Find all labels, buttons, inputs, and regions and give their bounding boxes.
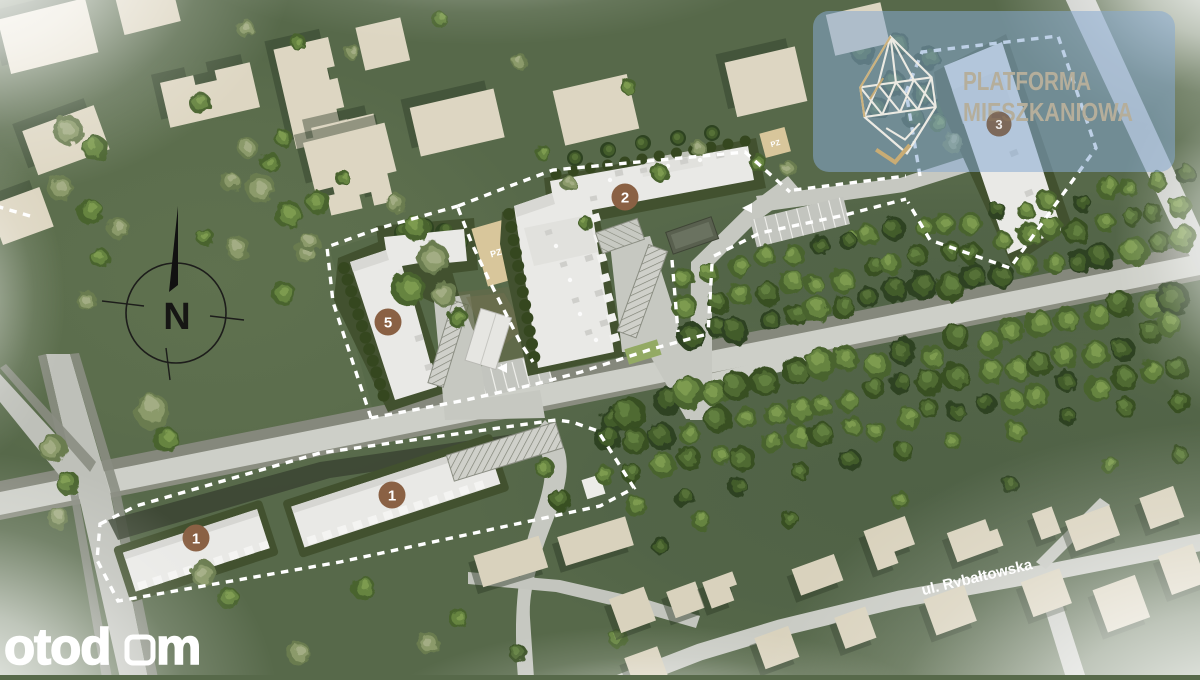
svg-text:3: 3 — [995, 117, 1002, 132]
svg-text:m: m — [156, 618, 201, 675]
svg-text:otod: otod — [4, 618, 110, 675]
svg-text:1: 1 — [388, 488, 396, 505]
svg-text:2: 2 — [621, 190, 629, 207]
svg-text:N: N — [163, 296, 190, 338]
svg-text:PLATFORMA: PLATFORMA — [963, 66, 1091, 96]
svg-text:5: 5 — [384, 315, 392, 332]
